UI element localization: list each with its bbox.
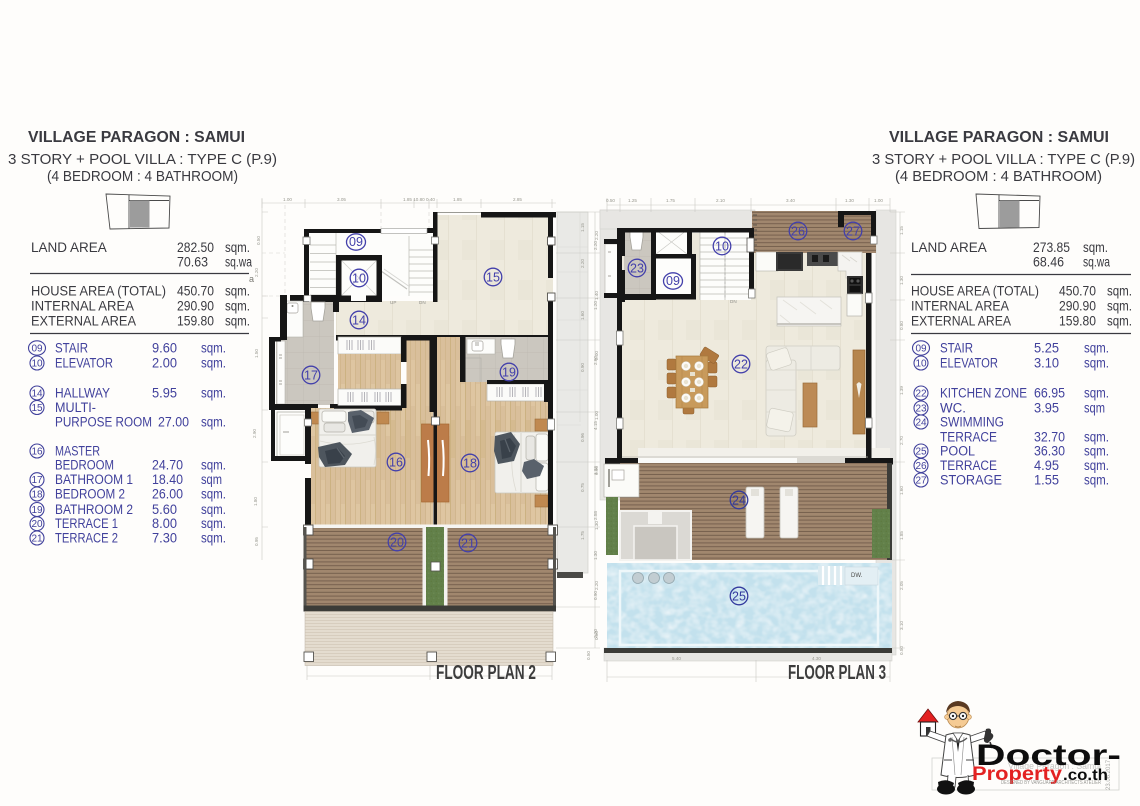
svg-text:sqm.: sqm. <box>1107 284 1132 299</box>
svg-text:1.15: 1.15 <box>899 226 904 235</box>
svg-text:282.50: 282.50 <box>177 240 214 255</box>
svg-text:15: 15 <box>31 403 43 414</box>
svg-text:sqm.: sqm. <box>1084 458 1109 473</box>
svg-text:sqm.: sqm. <box>1107 299 1132 314</box>
svg-text:2.00: 2.00 <box>594 351 599 360</box>
svg-text:KITCHEN ZONE: KITCHEN ZONE <box>940 386 1027 401</box>
svg-text:sqm: sqm <box>1084 401 1105 416</box>
svg-text:1.85 10.80 0.40: 1.85 10.80 0.40 <box>403 197 435 202</box>
svg-text:36.30: 36.30 <box>1034 444 1065 459</box>
svg-text:2.10: 2.10 <box>716 198 725 203</box>
svg-text:7.30: 7.30 <box>152 531 177 546</box>
svg-text:2.70: 2.70 <box>899 436 904 445</box>
svg-text:14: 14 <box>31 389 43 400</box>
svg-text:2.20: 2.20 <box>594 581 599 590</box>
svg-text:24: 24 <box>732 494 746 508</box>
svg-text:20: 20 <box>390 536 404 550</box>
svg-text:450.70: 450.70 <box>177 284 214 299</box>
svg-text:16: 16 <box>31 447 43 458</box>
svg-text:sqm.: sqm. <box>201 341 226 356</box>
svg-text:16: 16 <box>389 456 403 470</box>
svg-text:1.75: 1.75 <box>666 198 675 203</box>
svg-text:10: 10 <box>31 359 43 370</box>
svg-text:19: 19 <box>31 505 43 516</box>
svg-text:MULTI-: MULTI- <box>55 400 96 415</box>
svg-text:9.60: 9.60 <box>152 341 177 356</box>
svg-text:26: 26 <box>791 225 805 239</box>
svg-text:1.30: 1.30 <box>594 521 599 530</box>
svg-text:1.30: 1.30 <box>899 276 904 285</box>
svg-text:sq.wa: sq.wa <box>225 255 252 270</box>
svg-text:18: 18 <box>31 490 43 501</box>
svg-text:0.90: 0.90 <box>593 591 598 600</box>
svg-text:sqm.: sqm. <box>1084 444 1109 459</box>
svg-text:(4 BEDROOM : 4 BATHROOM): (4 BEDROOM : 4 BATHROOM) <box>895 169 1102 185</box>
svg-text:66.95: 66.95 <box>1034 386 1065 401</box>
svg-text:2.20: 2.20 <box>593 241 598 250</box>
svg-text:1.30: 1.30 <box>845 198 854 203</box>
svg-text:sqm.: sqm. <box>1107 314 1132 329</box>
svg-text:18.40: 18.40 <box>152 472 183 487</box>
svg-text:sqm.: sqm. <box>201 487 226 502</box>
svg-text:22: 22 <box>915 389 927 400</box>
svg-text:ELEVATOR: ELEVATOR <box>940 356 998 371</box>
svg-text:sqm.: sqm. <box>1083 240 1108 255</box>
svg-text:1.85: 1.85 <box>899 531 904 540</box>
svg-text:5.25: 5.25 <box>1034 341 1059 356</box>
svg-text:MASTER: MASTER <box>55 444 100 459</box>
svg-text:sqm.: sqm. <box>225 314 250 329</box>
svg-text:273.85: 273.85 <box>1033 240 1070 255</box>
svg-text:sqm.: sqm. <box>225 240 250 255</box>
svg-text:STORAGE: STORAGE <box>940 473 1002 488</box>
svg-text:sqm.: sqm. <box>1084 430 1109 445</box>
svg-text:8.00: 8.00 <box>152 516 177 531</box>
svg-text:27: 27 <box>915 476 927 487</box>
svg-text:BATHROOM 2: BATHROOM 2 <box>55 502 133 517</box>
svg-text:sqm.: sqm. <box>201 458 226 473</box>
svg-text:23: 23 <box>915 404 927 415</box>
svg-text:3.95: 3.95 <box>1034 401 1059 416</box>
svg-text:VILLAGE PARAGON : SAMUI: VILLAGE PARAGON : SAMUI <box>28 129 245 146</box>
svg-text:3.10: 3.10 <box>1034 356 1059 371</box>
svg-text:0.50: 0.50 <box>594 631 599 640</box>
svg-text:TERRACE 2: TERRACE 2 <box>55 531 118 546</box>
svg-text:1.85: 1.85 <box>453 197 462 202</box>
svg-text:14: 14 <box>352 314 366 328</box>
svg-text:18: 18 <box>463 457 477 471</box>
svg-text:1.75: 1.75 <box>580 531 585 540</box>
svg-text:sqm.: sqm. <box>201 531 226 546</box>
svg-text:21: 21 <box>31 534 43 545</box>
svg-text:SWIMMING: SWIMMING <box>940 415 1004 430</box>
svg-text:HOUSE AREA (TOTAL): HOUSE AREA (TOTAL) <box>31 284 166 299</box>
svg-text:0.96: 0.96 <box>580 433 585 442</box>
svg-text:BATHROOM 1: BATHROOM 1 <box>55 472 133 487</box>
svg-text:INTERNAL AREA: INTERNAL AREA <box>911 299 1009 314</box>
svg-text:TERRACE: TERRACE <box>940 430 997 445</box>
svg-text:25: 25 <box>732 590 746 604</box>
svg-text:21: 21 <box>461 537 475 551</box>
svg-text:STAIR: STAIR <box>55 341 88 356</box>
svg-text:2.05: 2.05 <box>899 581 904 590</box>
svg-text:LAND AREA: LAND AREA <box>31 240 107 255</box>
svg-text:DW.: DW. <box>851 573 863 579</box>
svg-text:5.60: 5.60 <box>152 502 177 517</box>
svg-text:BEDROOM: BEDROOM <box>55 458 114 473</box>
svg-text:4.15: 4.15 <box>593 421 598 430</box>
svg-text:290.90: 290.90 <box>177 299 214 314</box>
svg-text:4.95: 4.95 <box>1034 458 1059 473</box>
svg-text:DN: DN <box>419 300 426 305</box>
svg-text:0.75: 0.75 <box>580 483 585 492</box>
svg-text:0.50: 0.50 <box>899 646 904 655</box>
svg-text:27: 27 <box>846 225 860 239</box>
svg-text:32.70: 32.70 <box>1034 430 1065 445</box>
svg-text:sq.wa: sq.wa <box>1083 255 1110 270</box>
svg-text:20: 20 <box>31 519 43 530</box>
svg-text:1.80: 1.80 <box>253 497 258 506</box>
svg-text:sqm.: sqm. <box>201 386 226 401</box>
svg-text:159.80: 159.80 <box>1059 314 1096 329</box>
svg-text:EXTERNAL AREA: EXTERNAL AREA <box>911 314 1011 329</box>
svg-text:5.40: 5.40 <box>672 656 681 661</box>
svg-text:2.85: 2.85 <box>513 197 522 202</box>
svg-text:2.58: 2.58 <box>593 511 598 520</box>
svg-text:sqm.: sqm. <box>1084 356 1109 371</box>
svg-text:17: 17 <box>304 369 318 383</box>
svg-text:POOL: POOL <box>940 444 975 459</box>
svg-text:1.00: 1.00 <box>283 197 292 202</box>
svg-text:TERRACE: TERRACE <box>940 458 997 473</box>
svg-text:sqm.: sqm. <box>201 516 226 531</box>
svg-text:26.00: 26.00 <box>152 487 183 502</box>
svg-text:TERRACE 1: TERRACE 1 <box>55 516 118 531</box>
svg-text:3 STORY + POOL VILLA : TYPE C: 3 STORY + POOL VILLA : TYPE C (P.9) <box>8 152 277 168</box>
svg-text:1.60: 1.60 <box>899 486 904 495</box>
svg-text:22: 22 <box>734 358 748 372</box>
svg-text:09: 09 <box>666 274 680 288</box>
svg-text:EXTERNAL AREA: EXTERNAL AREA <box>31 314 136 329</box>
svg-text:INTERNAL AREA: INTERNAL AREA <box>31 299 134 314</box>
svg-text:1.55: 1.55 <box>1034 473 1059 488</box>
svg-text:UP: UP <box>390 300 396 305</box>
svg-text:26: 26 <box>915 461 927 472</box>
svg-text:1.00: 1.00 <box>594 411 599 420</box>
svg-text:HALLWAY: HALLWAY <box>55 386 110 401</box>
svg-text:LAND AREA: LAND AREA <box>911 240 987 255</box>
svg-text:23: 23 <box>630 262 644 276</box>
svg-text:sqm.: sqm. <box>225 284 250 299</box>
svg-text:sqm.: sqm. <box>1084 386 1109 401</box>
svg-text:WC.: WC. <box>940 401 966 416</box>
svg-text:3.10: 3.10 <box>899 621 904 630</box>
svg-text:1.50: 1.50 <box>254 349 259 358</box>
svg-text:10: 10 <box>915 359 927 370</box>
svg-text:DESIGNED BY VANGUARD ARCHITECT: DESIGNED BY VANGUARD ARCHITECTS ATELIER <box>1001 780 1101 786</box>
svg-text:17: 17 <box>31 475 43 486</box>
svg-text:09: 09 <box>915 344 927 355</box>
svg-text:HOUSE AREA (TOTAL): HOUSE AREA (TOTAL) <box>911 284 1039 299</box>
svg-text:450.70: 450.70 <box>1059 284 1096 299</box>
svg-text:5.95: 5.95 <box>152 386 177 401</box>
svg-text:sqm.: sqm. <box>201 356 226 371</box>
svg-text:09: 09 <box>31 344 43 355</box>
svg-text:BEDROOM 2: BEDROOM 2 <box>55 487 125 502</box>
svg-text:70.63: 70.63 <box>177 255 208 270</box>
svg-text:68.46: 68.46 <box>1033 255 1064 270</box>
svg-text:FLOOR PLAN 2: FLOOR PLAN 2 <box>436 662 536 684</box>
svg-text:sqm: sqm <box>201 472 222 487</box>
svg-text:2.20: 2.20 <box>594 231 599 240</box>
svg-text:24.70: 24.70 <box>152 458 183 473</box>
svg-text:sqm.: sqm. <box>201 415 226 430</box>
svg-text:DN: DN <box>730 299 737 304</box>
svg-text:1.20: 1.20 <box>593 301 598 310</box>
svg-text:0.95: 0.95 <box>254 537 259 546</box>
svg-text:1.00: 1.00 <box>874 198 883 203</box>
svg-text:sqm.: sqm. <box>225 299 250 314</box>
svg-text:4.30: 4.30 <box>812 656 821 661</box>
svg-text:10: 10 <box>715 240 729 254</box>
svg-text:2.20: 2.20 <box>254 268 259 277</box>
svg-text:0.80: 0.80 <box>899 321 904 330</box>
svg-text:25: 25 <box>915 447 927 458</box>
svg-text:19: 19 <box>502 366 516 380</box>
svg-text:0.50: 0.50 <box>606 198 615 203</box>
svg-text:290.90: 290.90 <box>1059 299 1096 314</box>
svg-text:2.20: 2.20 <box>580 259 585 268</box>
svg-text:1.60: 1.60 <box>580 311 585 320</box>
svg-text:ELEVATOR: ELEVATOR <box>55 356 113 371</box>
svg-text:1.25: 1.25 <box>628 198 637 203</box>
svg-text:3 STORY + POOL VILLA : TYPE C: 3 STORY + POOL VILLA : TYPE C (P.9) <box>872 152 1135 168</box>
svg-text:1.30: 1.30 <box>593 551 598 560</box>
svg-text:VILLAGE PARAGON : SAMUI: VILLAGE PARAGON : SAMUI <box>889 129 1109 146</box>
svg-text:0.50: 0.50 <box>256 236 261 245</box>
svg-text:0.90: 0.90 <box>594 466 599 475</box>
svg-text:sqm.: sqm. <box>201 502 226 517</box>
svg-text:1.15: 1.15 <box>580 223 585 232</box>
svg-text:15: 15 <box>486 271 500 285</box>
svg-text:0.50: 0.50 <box>586 651 591 660</box>
svg-text:2.00: 2.00 <box>152 356 177 371</box>
svg-text:24: 24 <box>915 418 927 429</box>
svg-text:STAIR: STAIR <box>940 341 973 356</box>
svg-text:09: 09 <box>349 235 363 249</box>
svg-text:0.90: 0.90 <box>580 363 585 372</box>
svg-text:3.40: 3.40 <box>786 198 795 203</box>
svg-text:159.80: 159.80 <box>177 314 214 329</box>
svg-text:2.90: 2.90 <box>252 429 257 438</box>
svg-text:1.39: 1.39 <box>899 386 904 395</box>
svg-text:sqm.: sqm. <box>1084 341 1109 356</box>
svg-text:FLOOR PLAN 3: FLOOR PLAN 3 <box>788 662 886 684</box>
svg-text:1.40: 1.40 <box>594 291 599 300</box>
svg-text:(4 BEDROOM : 4 BATHROOM): (4 BEDROOM : 4 BATHROOM) <box>47 169 238 185</box>
svg-text:sqm.: sqm. <box>1084 473 1109 488</box>
svg-text:10: 10 <box>352 272 366 286</box>
svg-text:3.05: 3.05 <box>337 197 346 202</box>
svg-text:PURPOSE ROOM: PURPOSE ROOM <box>55 415 152 430</box>
svg-text:27.00: 27.00 <box>158 415 189 430</box>
